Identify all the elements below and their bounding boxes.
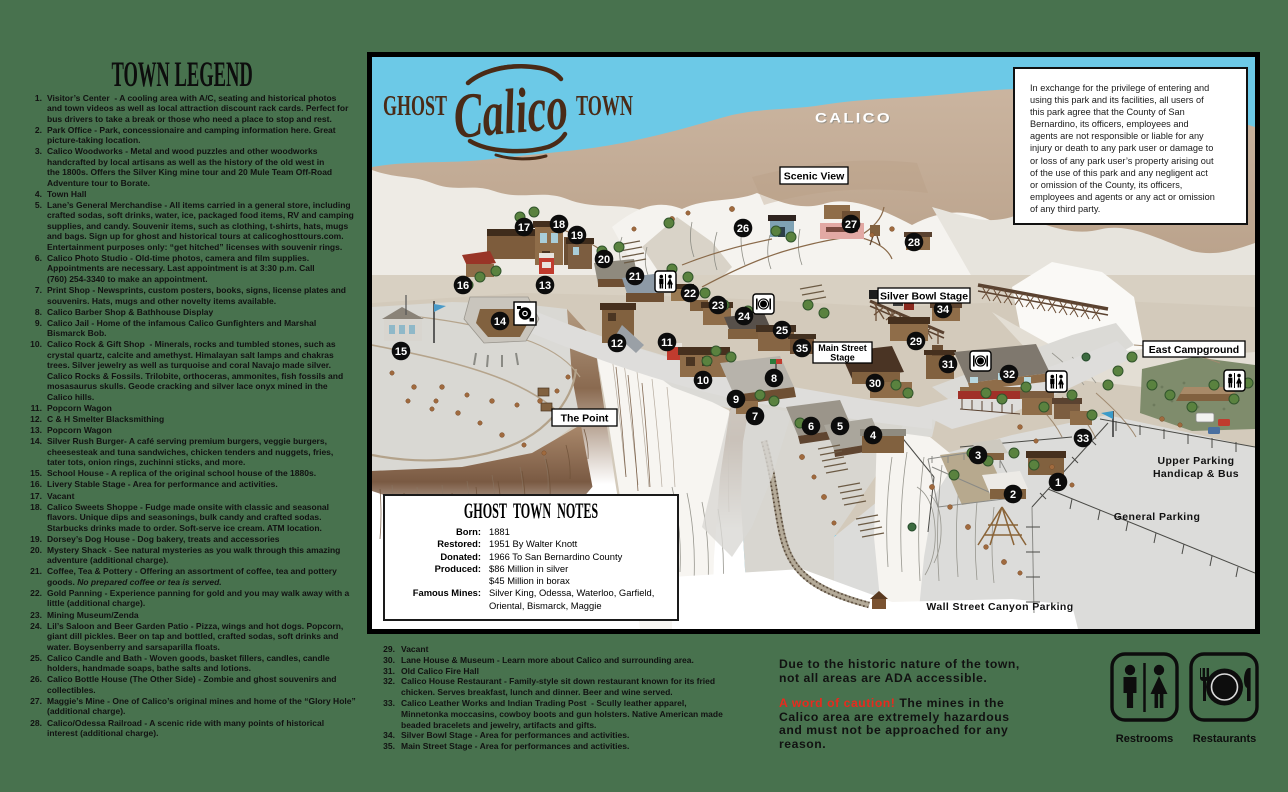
svg-text:34: 34 [937, 304, 950, 316]
svg-text:16: 16 [457, 280, 469, 292]
svg-text:20: 20 [598, 254, 610, 266]
svg-text:Restrooms: Restrooms [1116, 733, 1173, 745]
svg-text:9: 9 [733, 394, 739, 406]
svg-text:18: 18 [553, 219, 565, 231]
svg-text:15: 15 [395, 346, 407, 358]
svg-text:General Parking: General Parking [1114, 511, 1201, 523]
svg-text:27: 27 [845, 219, 857, 231]
svg-text:5: 5 [837, 421, 843, 433]
svg-text:30: 30 [869, 378, 881, 390]
svg-text:19: 19 [571, 230, 583, 242]
svg-text:GHOST: GHOST [383, 91, 447, 122]
svg-text:21: 21 [629, 271, 641, 283]
svg-text:32: 32 [1003, 369, 1015, 381]
svg-text:Wall Street Canyon Parking: Wall Street Canyon Parking [926, 601, 1073, 613]
svg-text:Upper Parking: Upper Parking [1158, 455, 1235, 467]
svg-text:33: 33 [1077, 433, 1089, 445]
svg-text:7: 7 [752, 411, 758, 423]
svg-text:10: 10 [697, 375, 709, 387]
svg-text:8: 8 [771, 373, 777, 385]
svg-text:28: 28 [908, 237, 920, 249]
svg-text:26: 26 [737, 223, 749, 235]
svg-text:Handicap & Bus: Handicap & Bus [1153, 468, 1239, 480]
svg-text:TOWN: TOWN [576, 91, 633, 122]
svg-text:23: 23 [712, 300, 724, 312]
svg-text:Stage: Stage [830, 353, 855, 363]
svg-text:12: 12 [611, 338, 623, 350]
svg-text:6: 6 [808, 421, 814, 433]
svg-text:East Campground: East Campground [1149, 344, 1239, 356]
svg-text:31: 31 [942, 359, 954, 371]
svg-text:29: 29 [910, 336, 922, 348]
svg-text:4: 4 [870, 430, 877, 442]
svg-text:17: 17 [518, 222, 530, 234]
svg-text:1: 1 [1055, 477, 1061, 489]
svg-text:25: 25 [776, 325, 788, 337]
svg-text:Scenic View: Scenic View [784, 171, 845, 183]
svg-text:Main Street: Main Street [818, 343, 867, 353]
svg-text:24: 24 [738, 311, 751, 323]
svg-text:3: 3 [975, 450, 981, 462]
svg-text:CALICO: CALICO [815, 110, 892, 126]
svg-text:Silver Bowl Stage: Silver Bowl Stage [880, 291, 968, 303]
svg-text:2: 2 [1010, 489, 1016, 501]
svg-text:The Point: The Point [561, 413, 609, 425]
svg-text:11: 11 [661, 337, 673, 349]
svg-text:35: 35 [796, 343, 808, 355]
svg-text:Restaurants: Restaurants [1193, 733, 1257, 745]
svg-text:14: 14 [494, 316, 507, 328]
svg-text:13: 13 [539, 280, 551, 292]
svg-text:22: 22 [684, 288, 696, 300]
